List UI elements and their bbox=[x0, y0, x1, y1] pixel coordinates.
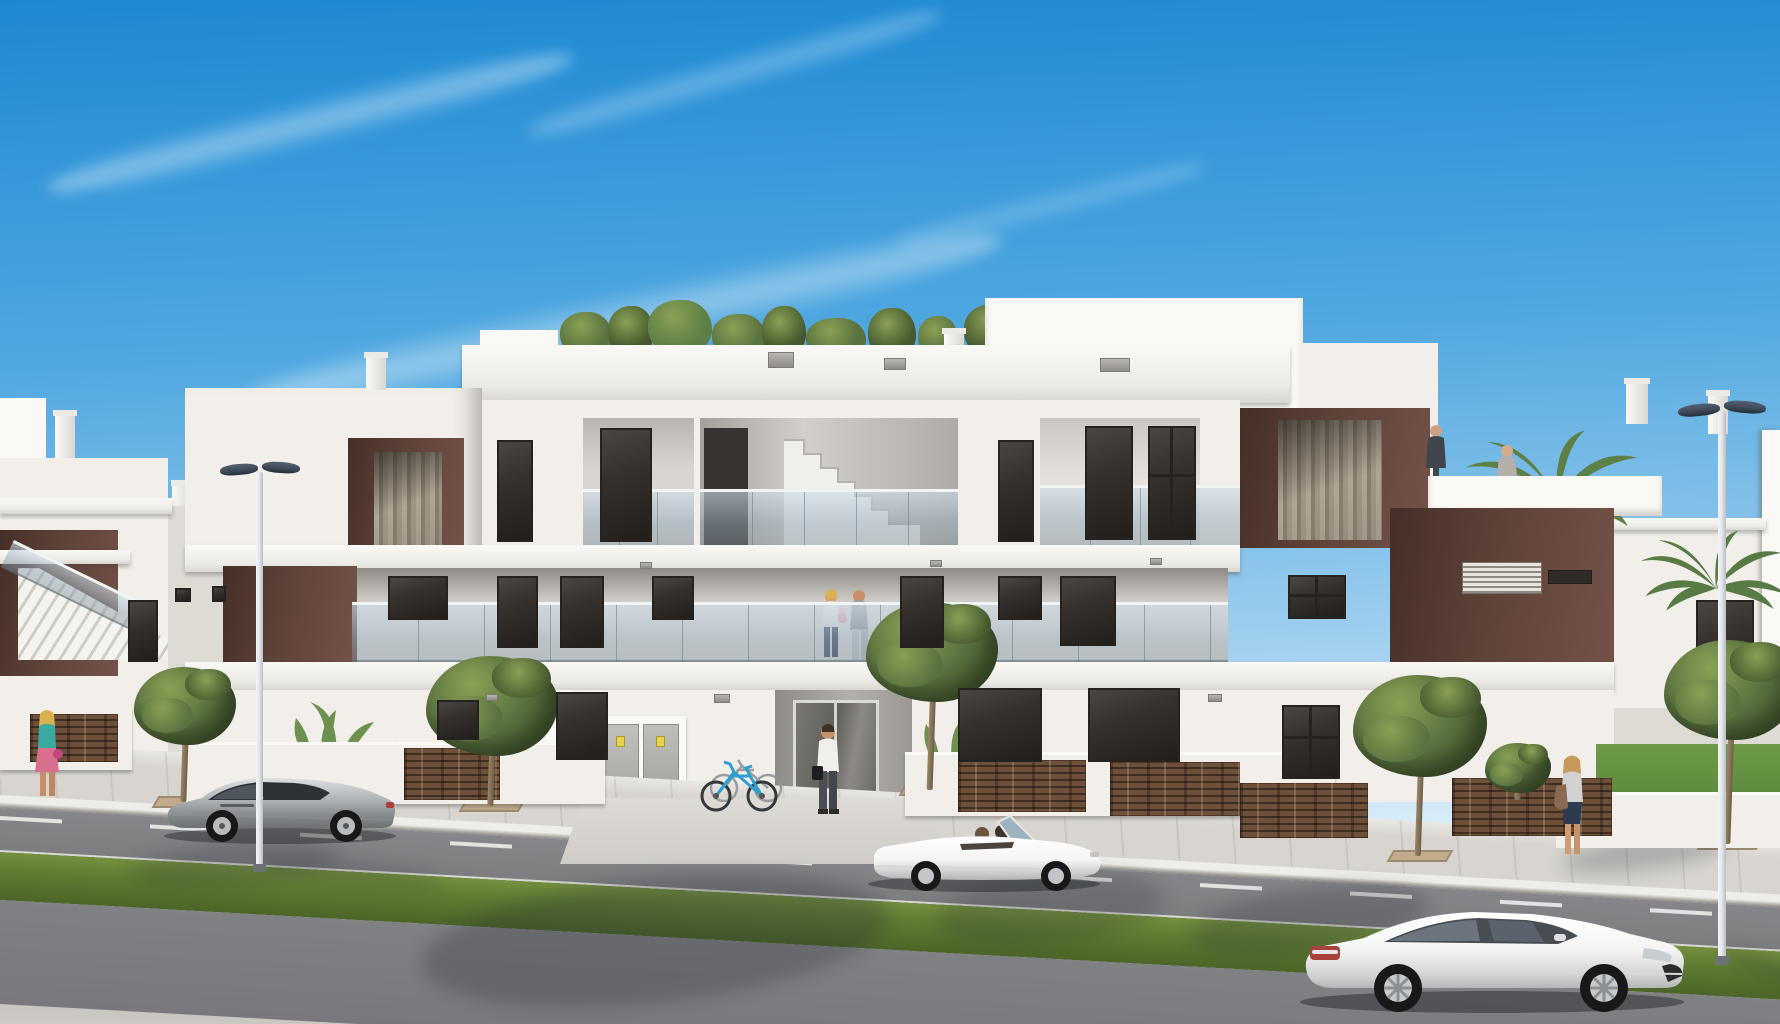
window-opening bbox=[1060, 576, 1116, 646]
window-opening bbox=[1148, 426, 1196, 540]
car-white-coupe bbox=[1292, 890, 1696, 1020]
street-lamp-left bbox=[220, 458, 310, 870]
window-opening bbox=[1548, 570, 1592, 584]
lamp-head bbox=[1724, 399, 1767, 415]
window-opening bbox=[900, 576, 944, 648]
window-opening bbox=[497, 576, 538, 648]
foliage-blob bbox=[492, 658, 551, 698]
foliage-blob bbox=[877, 642, 943, 687]
window-opening bbox=[998, 440, 1034, 542]
street-lamp-right bbox=[1678, 396, 1774, 968]
wall-vent bbox=[768, 352, 794, 368]
lamp-head bbox=[1677, 402, 1720, 418]
lamp-pole bbox=[1718, 412, 1726, 962]
window-opening bbox=[437, 700, 479, 740]
wall-vent bbox=[640, 562, 652, 569]
window-opening bbox=[1085, 426, 1133, 540]
wall-vent bbox=[1150, 558, 1162, 565]
foliage-blob bbox=[1518, 744, 1548, 764]
window-opening bbox=[998, 576, 1042, 620]
vent-grille bbox=[1462, 562, 1542, 594]
window-opening bbox=[556, 692, 608, 760]
window-opening bbox=[497, 440, 533, 542]
wall-vent bbox=[714, 694, 730, 703]
foliage-blob bbox=[1363, 716, 1430, 762]
pedestrian-woman-left bbox=[30, 710, 66, 802]
lamp-pole bbox=[256, 472, 263, 870]
wall-vent bbox=[884, 358, 906, 370]
lamp-base bbox=[253, 864, 266, 872]
window-opening bbox=[1288, 575, 1346, 619]
wall-vent bbox=[1208, 694, 1222, 702]
window-opening bbox=[175, 588, 191, 602]
pedestrian-man-entrance bbox=[810, 724, 850, 824]
window-opening bbox=[1088, 688, 1180, 762]
foliage-blob bbox=[1420, 677, 1481, 718]
window-opening bbox=[1282, 705, 1340, 779]
window-opening bbox=[212, 586, 226, 602]
architectural-render-scene bbox=[0, 0, 1780, 1024]
lamp-head bbox=[262, 461, 301, 475]
window-opening bbox=[600, 428, 652, 542]
window-opening bbox=[560, 576, 604, 648]
lamp-head bbox=[220, 462, 259, 476]
bicycles bbox=[694, 744, 790, 816]
window-opening bbox=[958, 688, 1042, 762]
window-opening bbox=[388, 576, 448, 620]
wall-vent bbox=[930, 560, 942, 567]
wall-vent bbox=[1100, 358, 1130, 372]
car-white-convertible bbox=[864, 796, 1104, 896]
foliage-blob bbox=[142, 698, 193, 733]
pedestrian-woman-right bbox=[1552, 756, 1596, 866]
wall-vent bbox=[486, 694, 498, 701]
foliage-blob bbox=[1490, 763, 1523, 786]
lamp-base bbox=[1715, 956, 1729, 965]
window-opening bbox=[652, 576, 694, 620]
